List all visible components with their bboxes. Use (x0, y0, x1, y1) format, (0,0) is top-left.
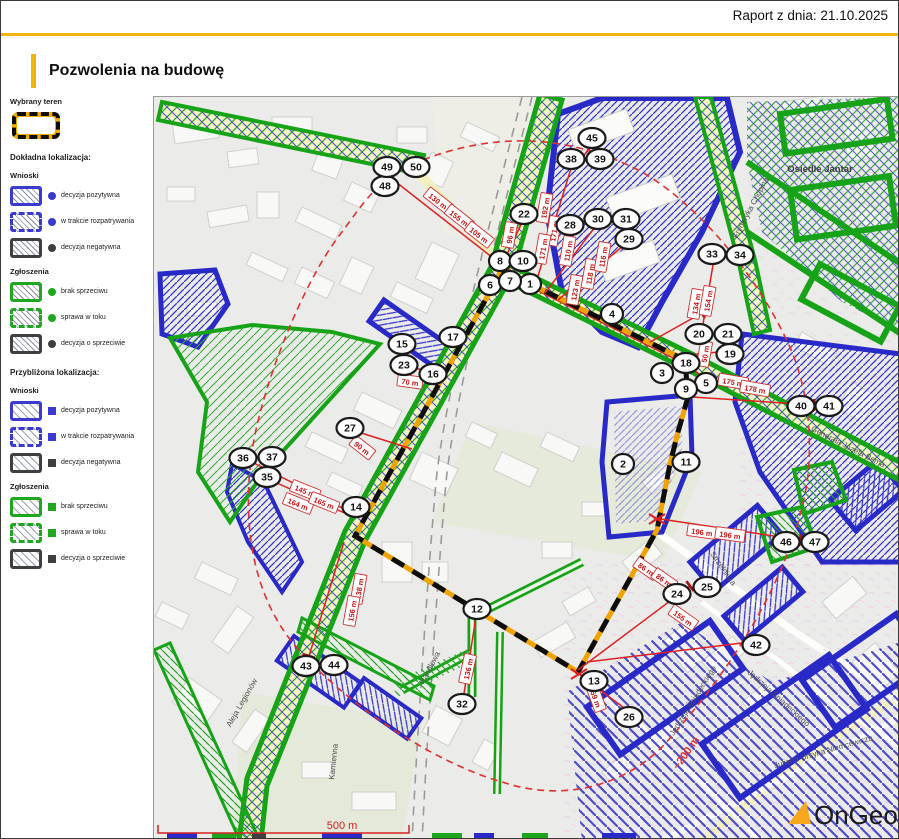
map: 130 m155 m105 m96 m192 m171 m171 m110 m1… (153, 96, 899, 839)
svg-text:45: 45 (586, 133, 598, 145)
legend-item-label: decyzja o sprzeciwie (61, 340, 125, 347)
svg-text:4: 4 (609, 309, 615, 321)
legend-dot-icon (48, 288, 56, 296)
svg-text:49: 49 (381, 162, 393, 174)
legend-square-icon (48, 459, 56, 467)
legend-item: decyzja pozytywna (10, 186, 150, 206)
svg-text:22: 22 (518, 209, 530, 221)
legend-swatch (10, 549, 42, 569)
svg-text:15: 15 (396, 339, 408, 351)
legend-item-label: sprawa w toku (61, 314, 106, 321)
svg-text:36: 36 (237, 453, 249, 465)
legend-item: decyzja o sprzeciwie (10, 549, 150, 569)
svg-text:48: 48 (379, 181, 391, 193)
permit-marker-37: 37 (259, 447, 286, 467)
permit-marker-42: 42 (743, 635, 770, 655)
title-row: Pozwolenia na budowę (31, 54, 224, 88)
permit-marker-19: 19 (717, 344, 744, 364)
permit-marker-34: 34 (727, 245, 754, 265)
svg-text:3: 3 (659, 368, 665, 380)
selected-area-label: Wybrany teren (10, 97, 150, 106)
legend-item: decyzja negatywna (10, 238, 150, 258)
legend-item: brak sprzeciwu (10, 497, 150, 517)
permit-marker-39: 39 (587, 149, 614, 169)
permit-marker-28: 28 (557, 215, 584, 235)
permit-marker-23: 23 (391, 355, 418, 375)
permit-marker-22: 22 (511, 204, 538, 224)
permit-marker-49: 49 (374, 157, 401, 177)
svg-text:19: 19 (724, 349, 736, 361)
permit-marker-16: 16 (420, 364, 447, 384)
ongeo-logo-text: OnGeo (814, 800, 898, 830)
permit-marker-43: 43 (293, 656, 320, 676)
legend-square-icon (48, 433, 56, 441)
report-page: Raport z dnia: 21.10.2025 Pozwolenia na … (0, 0, 899, 839)
legend-section-title: Dokładna lokalizacja: (10, 153, 150, 162)
legend-group-title: Wnioski (10, 171, 150, 180)
svg-text:43: 43 (300, 661, 312, 673)
svg-text:5: 5 (703, 378, 709, 390)
legend-swatch (10, 334, 42, 354)
permit-marker-2: 2 (612, 454, 634, 474)
permit-marker-3: 3 (651, 363, 673, 383)
permit-marker-33: 33 (699, 244, 726, 264)
street-label: Osiedle Jantar (787, 164, 853, 175)
permit-marker-6: 6 (479, 275, 501, 295)
svg-text:29: 29 (623, 234, 635, 246)
legend-swatch (10, 453, 42, 473)
svg-text:9: 9 (683, 384, 689, 396)
svg-text:18: 18 (680, 358, 692, 370)
svg-text:17: 17 (447, 332, 459, 344)
permit-marker-41: 41 (816, 396, 843, 416)
permit-marker-25: 25 (694, 577, 721, 597)
legend-square-icon (48, 555, 56, 563)
selected-area-icon (12, 112, 60, 139)
svg-text:31: 31 (620, 214, 632, 226)
legend-swatch (10, 212, 42, 232)
scale-bar-label: 500 m (327, 820, 358, 832)
permit-marker-9: 9 (675, 379, 697, 399)
svg-text:39: 39 (594, 154, 606, 166)
permit-marker-44: 44 (321, 655, 348, 675)
legend-group-title: Zgłoszenia (10, 482, 150, 491)
svg-text:35: 35 (261, 472, 273, 484)
legend-swatch (10, 186, 42, 206)
svg-text:27: 27 (344, 423, 356, 435)
legend-sections: Dokładna lokalizacja:Wnioskidecyzja pozy… (10, 153, 150, 569)
permit-marker-20: 20 (686, 324, 713, 344)
svg-text:12: 12 (471, 604, 483, 616)
permit-marker-30: 30 (585, 209, 612, 229)
svg-text:7: 7 (507, 276, 513, 288)
legend-item: w trakcie rozpatrywania (10, 212, 150, 232)
permit-marker-13: 13 (581, 671, 608, 691)
permit-marker-50: 50 (403, 157, 430, 177)
permit-marker-35: 35 (254, 467, 281, 487)
permit-marker-31: 31 (613, 209, 640, 229)
legend-swatch (10, 401, 42, 421)
legend-item-label: decyzja negatywna (61, 459, 121, 466)
legend-item: sprawa w toku (10, 308, 150, 328)
legend-item-label: sprawa w toku (61, 529, 106, 536)
legend-square-icon (48, 407, 56, 415)
svg-text:16: 16 (427, 369, 439, 381)
legend-item-label: brak sprzeciwu (61, 503, 108, 510)
svg-text:24: 24 (671, 589, 683, 601)
page-title: Pozwolenia na budowę (49, 62, 224, 80)
legend-item-label: decyzja o sprzeciwie (61, 555, 125, 562)
permit-marker-10: 10 (510, 251, 537, 271)
title-accent-bar (31, 54, 36, 88)
permit-marker-7: 7 (499, 271, 521, 291)
legend-item: decyzja o sprzeciwie (10, 334, 150, 354)
svg-text:47: 47 (809, 537, 821, 549)
permit-marker-18: 18 (673, 353, 700, 373)
svg-text:33: 33 (706, 249, 718, 261)
legend-dot-icon (48, 192, 56, 200)
svg-text:38: 38 (565, 154, 577, 166)
legend-swatch (10, 497, 42, 517)
svg-text:21: 21 (722, 329, 734, 341)
legend-item-label: w trakcie rozpatrywania (61, 218, 134, 225)
svg-text:42: 42 (750, 640, 762, 652)
svg-text:46: 46 (780, 537, 792, 549)
legend-item: decyzja negatywna (10, 453, 150, 473)
permit-marker-15: 15 (389, 334, 416, 354)
legend-swatch (10, 238, 42, 258)
legend-item-label: decyzja negatywna (61, 244, 121, 251)
svg-text:32: 32 (456, 699, 468, 711)
svg-text:11: 11 (680, 457, 691, 469)
legend-swatch (10, 308, 42, 328)
legend-swatch (10, 427, 42, 447)
legend-item-label: w trakcie rozpatrywania (61, 433, 134, 440)
svg-text:41: 41 (823, 401, 835, 413)
legend-square-icon (48, 503, 56, 511)
legend-group-title: Wnioski (10, 386, 150, 395)
legend-item: w trakcie rozpatrywania (10, 427, 150, 447)
svg-text:40: 40 (795, 401, 807, 413)
permit-marker-8: 8 (489, 251, 511, 271)
permit-marker-5: 5 (695, 373, 717, 393)
svg-text:13: 13 (588, 676, 600, 688)
report-date: Raport z dnia: 21.10.2025 (733, 8, 888, 23)
permit-marker-32: 32 (449, 694, 476, 714)
permit-marker-46: 46 (773, 532, 800, 552)
permit-marker-48: 48 (372, 176, 399, 196)
permit-marker-1: 1 (519, 274, 541, 294)
legend-item-label: brak sprzeciwu (61, 288, 108, 295)
svg-text:8: 8 (497, 256, 503, 268)
svg-text:2: 2 (620, 459, 626, 471)
svg-text:28: 28 (564, 220, 576, 232)
permit-marker-26: 26 (616, 707, 643, 727)
legend-item-label: decyzja pozytywna (61, 192, 120, 199)
svg-text:6: 6 (487, 280, 493, 292)
legend-swatch (10, 523, 42, 543)
legend-group-title: Zgłoszenia (10, 267, 150, 276)
permit-marker-40: 40 (788, 396, 815, 416)
svg-text:1: 1 (527, 279, 533, 291)
legend-dot-icon (48, 314, 56, 322)
permit-marker-45: 45 (579, 128, 606, 148)
permit-marker-38: 38 (558, 149, 585, 169)
permit-marker-11: 11 (673, 452, 700, 472)
svg-text:37: 37 (266, 452, 278, 464)
legend-dot-icon (48, 218, 56, 226)
accent-rule (1, 33, 899, 36)
permit-marker-4: 4 (601, 304, 623, 324)
svg-text:23: 23 (398, 360, 410, 372)
permit-marker-29: 29 (616, 229, 643, 249)
svg-text:50: 50 (410, 162, 422, 174)
permit-marker-21: 21 (715, 324, 742, 344)
legend-dot-icon (48, 244, 56, 252)
legend-item: sprawa w toku (10, 523, 150, 543)
permit-marker-24: 24 (664, 584, 691, 604)
svg-text:34: 34 (734, 250, 746, 262)
legend-item-label: decyzja pozytywna (61, 407, 120, 414)
svg-text:10: 10 (517, 256, 529, 268)
legend-square-icon (48, 529, 56, 537)
legend: Wybrany teren Dokładna lokalizacja:Wnios… (10, 97, 150, 575)
svg-text:14: 14 (350, 502, 362, 514)
legend-swatch (10, 282, 42, 302)
permit-marker-14: 14 (343, 497, 370, 517)
legend-item: brak sprzeciwu (10, 282, 150, 302)
permit-marker-47: 47 (802, 532, 829, 552)
legend-item: decyzja pozytywna (10, 401, 150, 421)
permit-marker-27: 27 (337, 418, 364, 438)
svg-text:20: 20 (693, 329, 705, 341)
legend-dot-icon (48, 340, 56, 348)
permit-marker-17: 17 (440, 327, 467, 347)
legend-section-title: Przybliżona lokalizacja: (10, 368, 150, 377)
svg-text:26: 26 (623, 712, 635, 724)
permit-marker-12: 12 (464, 599, 491, 619)
svg-text:25: 25 (701, 582, 713, 594)
svg-text:44: 44 (328, 660, 340, 672)
permit-marker-36: 36 (230, 448, 257, 468)
svg-text:30: 30 (592, 214, 604, 226)
